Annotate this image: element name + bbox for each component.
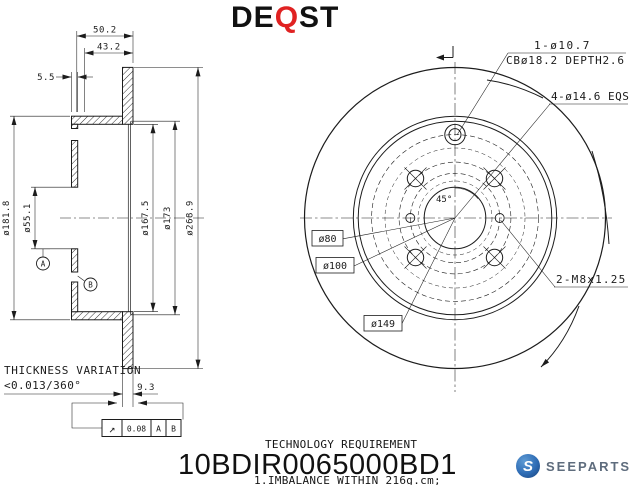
callout-center-hole-line1: 1-ø10.7: [534, 39, 591, 52]
drawing-canvas: 50.2 43.2 5.5 ø181.8 ø55.1 ø167.5 ø173 ø…: [0, 0, 629, 485]
label-box-d80: ø80: [312, 231, 343, 247]
callout-thread-holes: 2-M8x1.25: [556, 273, 626, 286]
dim-bore-label: ø55.1: [23, 203, 33, 233]
section-inner-edges: [128, 121, 130, 315]
thickness-variation-value: <0.013/360°: [4, 379, 81, 392]
runout-tolerance: 0.08: [127, 425, 146, 434]
technical-drawing-page: DEQST: [0, 0, 629, 485]
front-view: 45° 1-ø10.7 CBø18.2 DEPTH2.6 4-ø14.6 EQS…: [300, 39, 629, 392]
datum-a-balloon: A: [37, 257, 50, 270]
datum-a-label: A: [41, 260, 46, 269]
footer-brand: S SEEPARTS: [516, 454, 629, 478]
label-d100: ø100: [323, 261, 347, 272]
dim-hat-od-label: ø181.8: [2, 200, 12, 236]
rotation-arcs: [487, 80, 609, 367]
lug-hole: [405, 168, 427, 190]
footer-brand-name: SEEPARTS: [546, 459, 629, 474]
dim-wall-label: 5.5: [37, 73, 55, 83]
callout-lug-holes: 4-ø14.6 EQS: [551, 90, 629, 103]
front-view-centerlines: [300, 62, 612, 392]
feature-control-frame: ↗ 0.08 A B: [102, 420, 181, 437]
callout-center-hole-line2: CBø18.2 DEPTH2.6: [506, 54, 625, 67]
lug-hole: [405, 247, 427, 269]
dim-inner2-label: ø173: [163, 206, 173, 230]
dim-inner1-label: ø167.5: [141, 200, 151, 236]
dim-width-total-label: 50.2: [93, 26, 117, 36]
dim-outer-label: ø268.9: [186, 200, 196, 236]
lug-hole: [484, 247, 506, 269]
thickness-variation-title: THICKNESS VARIATION: [4, 364, 141, 377]
label-d80: ø80: [318, 234, 336, 245]
seeparts-logo-icon: S: [516, 454, 540, 478]
angle-45-label: 45°: [436, 195, 452, 205]
dim-thickness-label: 9.3: [137, 383, 155, 393]
runout-datum-2: B: [171, 425, 176, 434]
datum-b-label: B: [88, 281, 93, 290]
label-d149: ø149: [371, 319, 395, 330]
label-box-d100: ø100: [316, 258, 354, 274]
label-box-d149: ø149: [364, 316, 402, 332]
section-direction-arrow: [436, 46, 453, 61]
section-view: 50.2 43.2 5.5 ø181.8 ø55.1 ø167.5 ø173 ø…: [2, 26, 206, 437]
part-number: 10BDIR0065000BD1: [178, 449, 457, 482]
runout-datum-1: A: [156, 425, 161, 434]
datum-b-balloon: B: [84, 278, 97, 291]
runout-symbol-icon: ↗: [109, 423, 116, 436]
angle-45-annotation: [455, 104, 550, 218]
dim-width-inner-label: 43.2: [97, 43, 121, 53]
